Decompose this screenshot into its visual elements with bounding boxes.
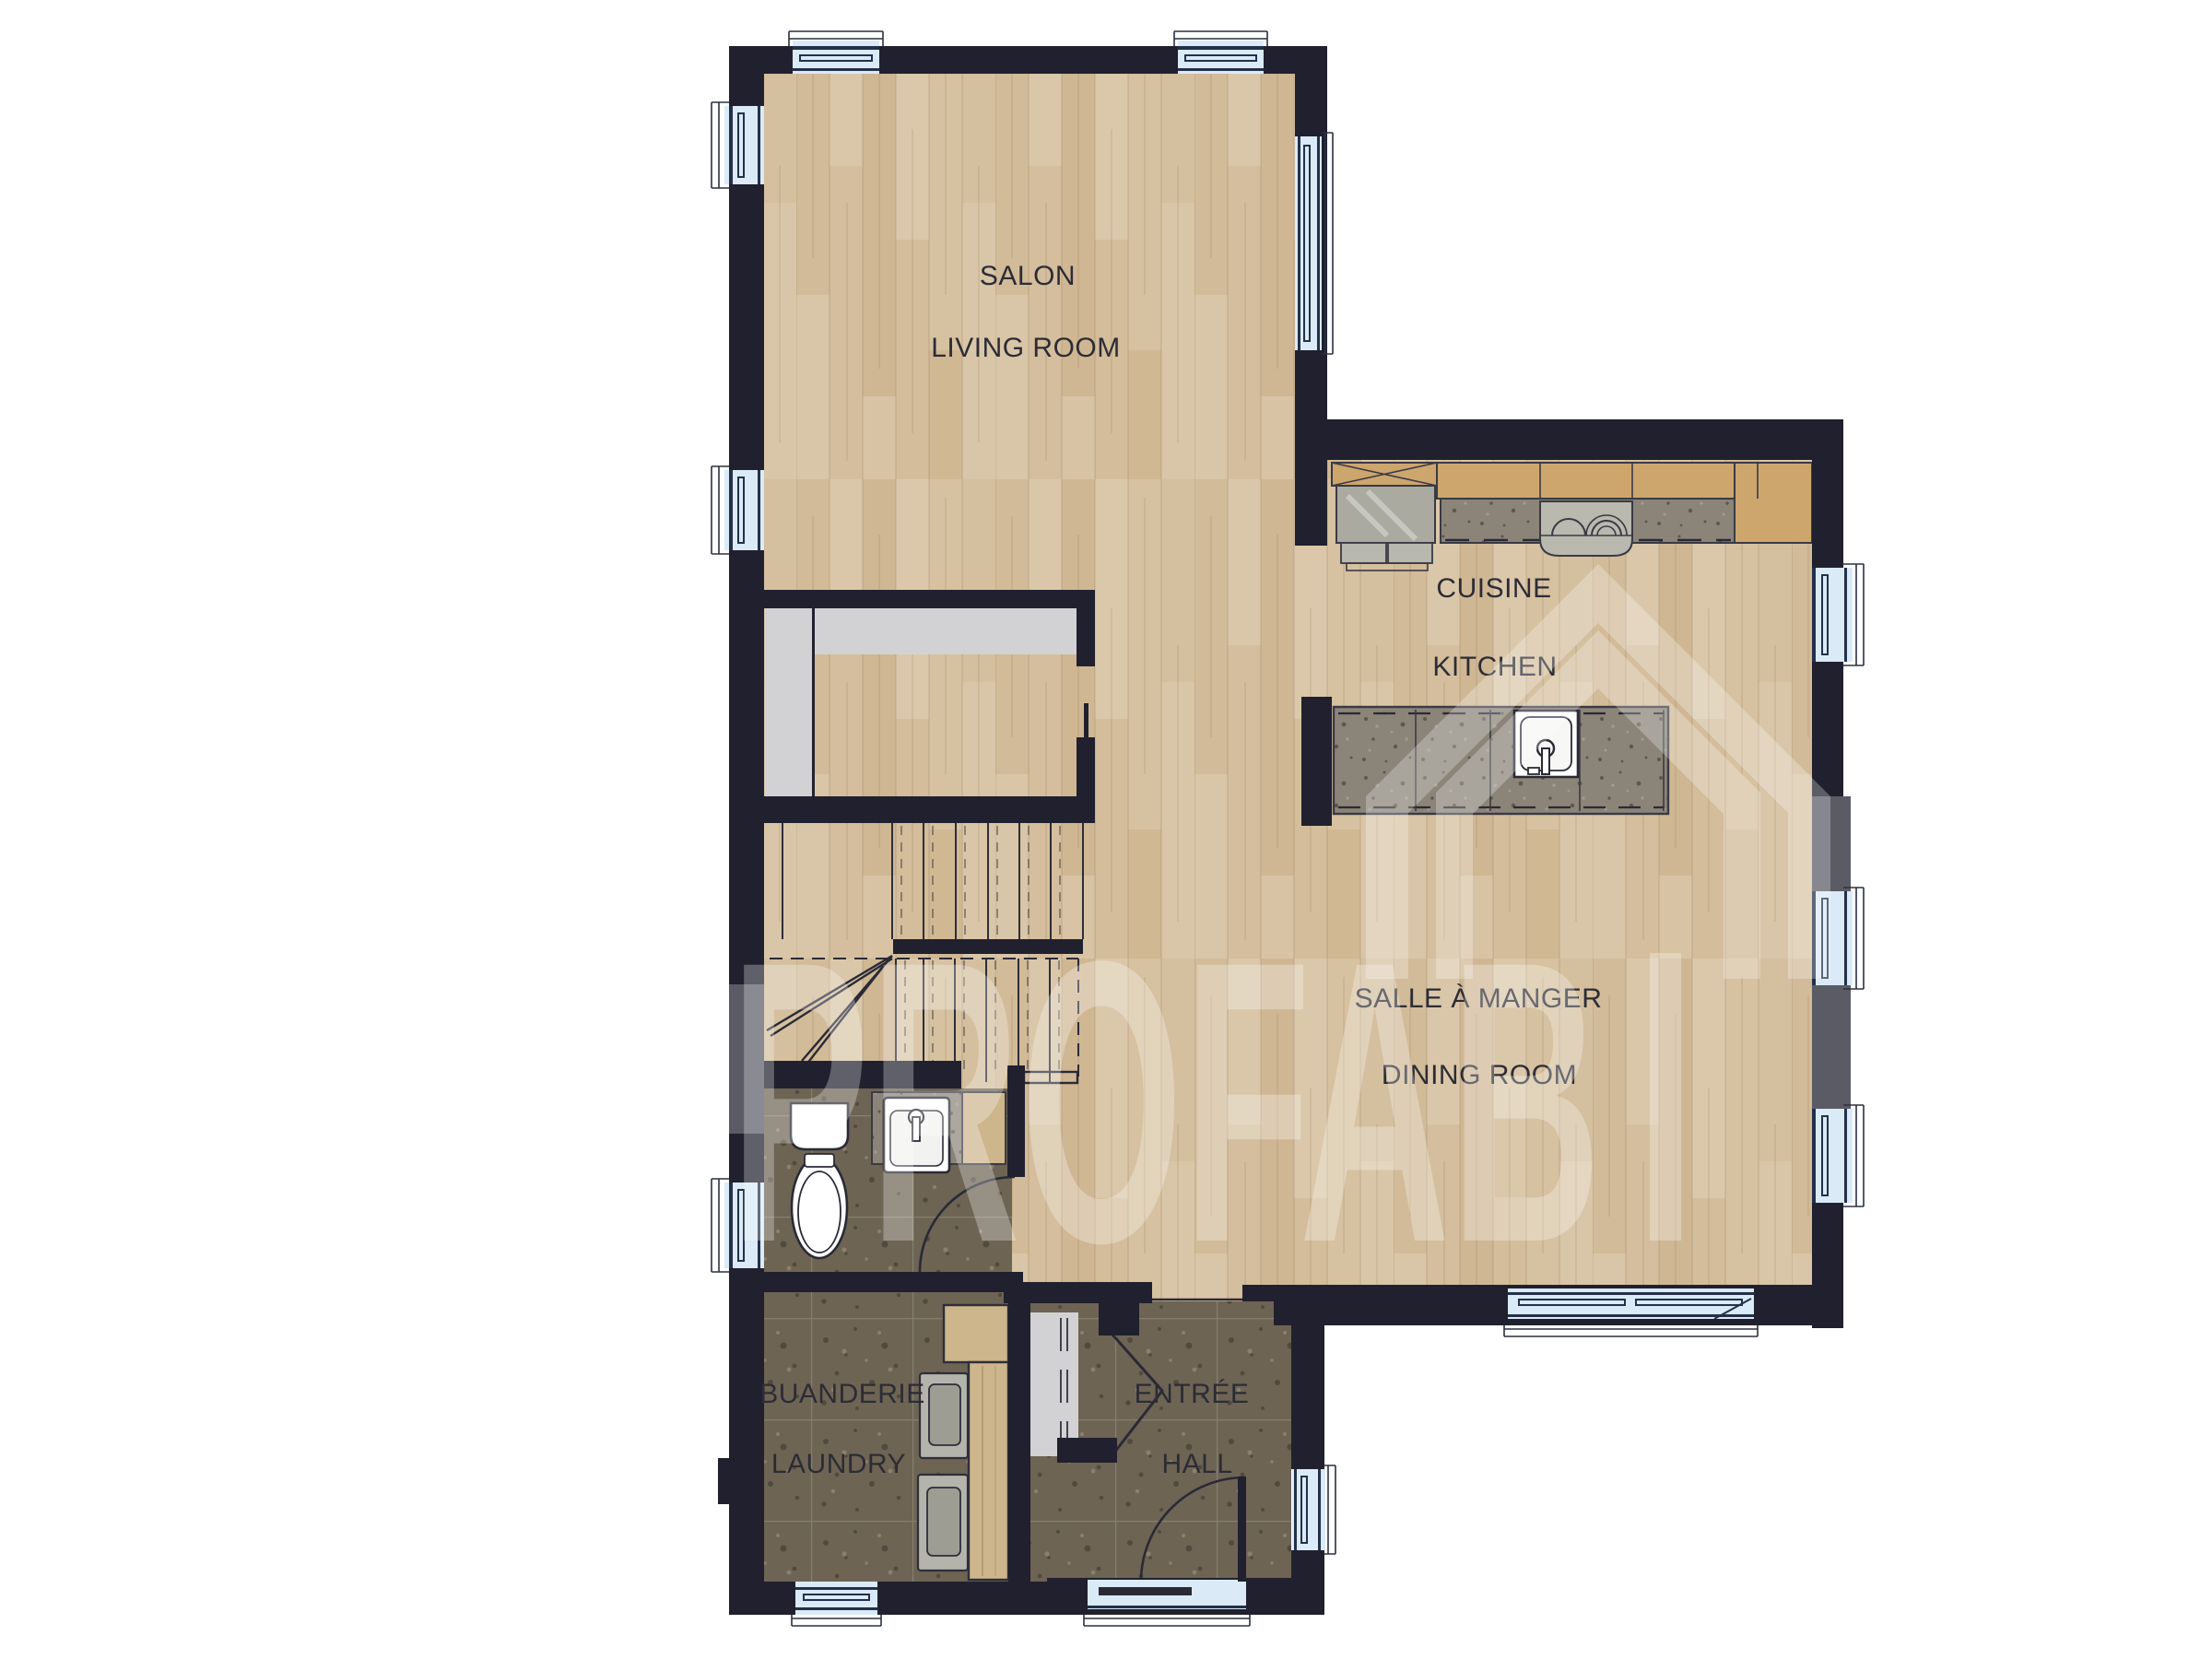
svg-text:LIVING ROOM: LIVING ROOM: [931, 333, 1121, 363]
svg-text:ENTRÉE: ENTRÉE: [1135, 1379, 1250, 1409]
svg-text:CUISINE: CUISINE: [1436, 573, 1551, 604]
svg-text:LAUNDRY: LAUNDRY: [771, 1449, 906, 1479]
svg-text:SALON: SALON: [980, 261, 1076, 291]
svg-text:HALL: HALL: [1161, 1449, 1232, 1479]
svg-text:BUANDERIE: BUANDERIE: [759, 1379, 925, 1409]
svg-text:PROFAB: PROFAB: [730, 877, 1601, 1326]
